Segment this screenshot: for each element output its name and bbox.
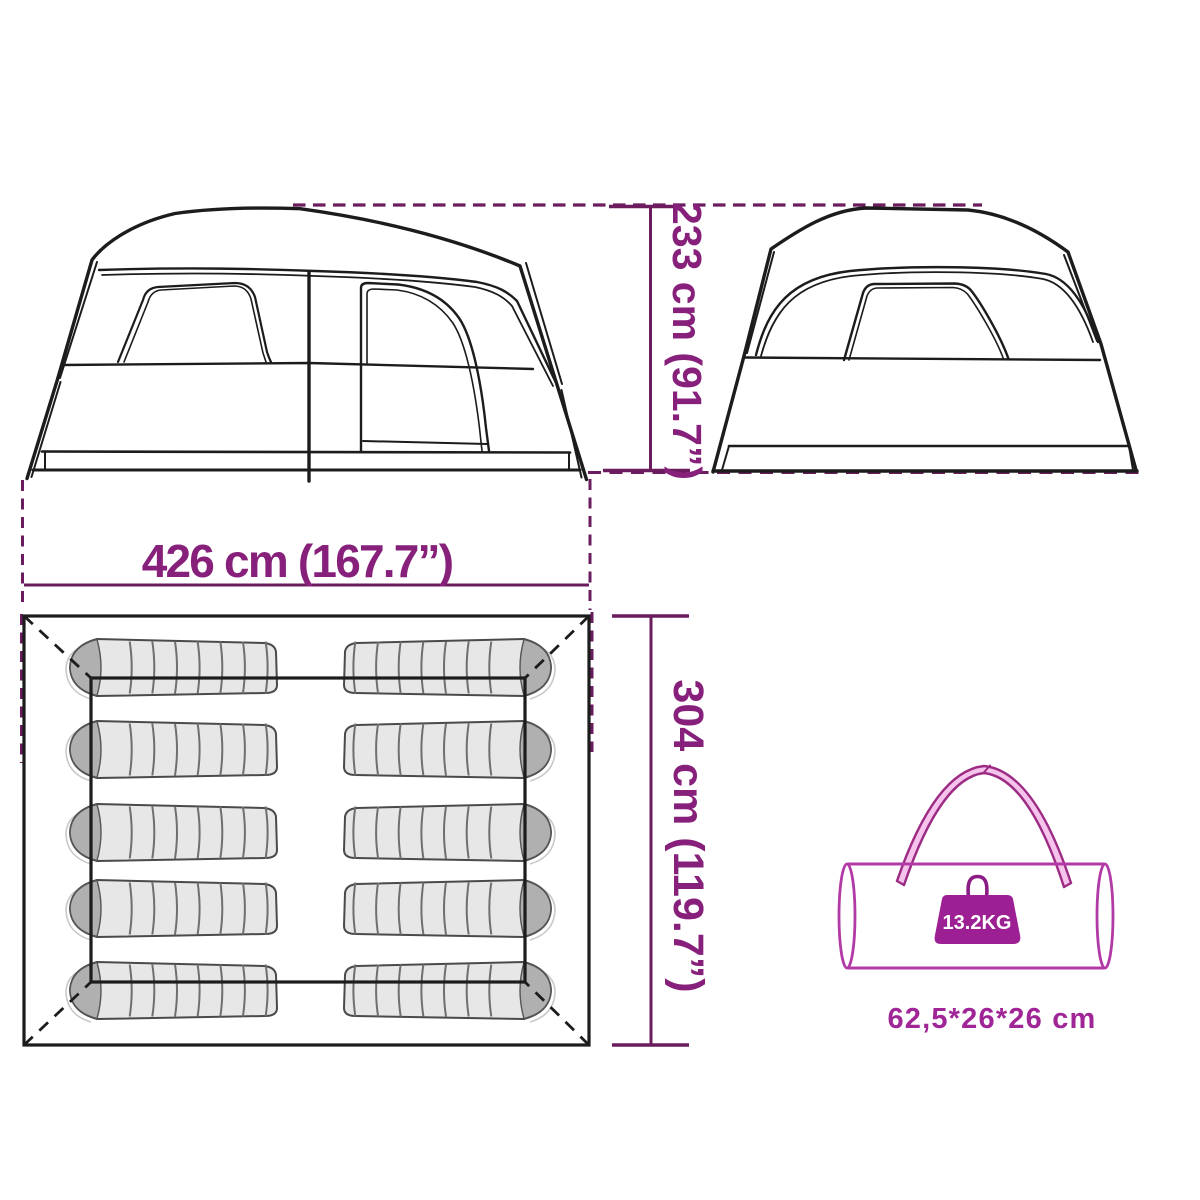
svg-text:233 cm (91.7”): 233 cm (91.7”) [664,202,710,480]
svg-text:426 cm (167.7”): 426 cm (167.7”) [142,535,453,587]
svg-text:62,5*26*26 cm: 62,5*26*26 cm [887,1003,1096,1035]
svg-text:304 cm (119.7”): 304 cm (119.7”) [664,679,712,992]
svg-text:13.2KG: 13.2KG [943,912,1012,934]
